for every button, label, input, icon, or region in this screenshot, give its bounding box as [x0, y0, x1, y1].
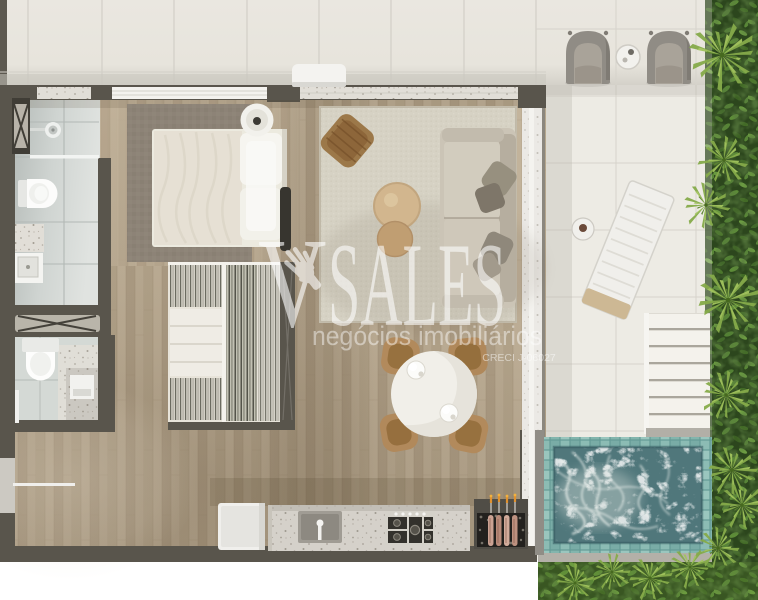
svg-text:CRECI J-06027: CRECI J-06027 — [482, 352, 556, 364]
svg-text:negócios imobiliários: negócios imobiliários — [312, 321, 542, 351]
